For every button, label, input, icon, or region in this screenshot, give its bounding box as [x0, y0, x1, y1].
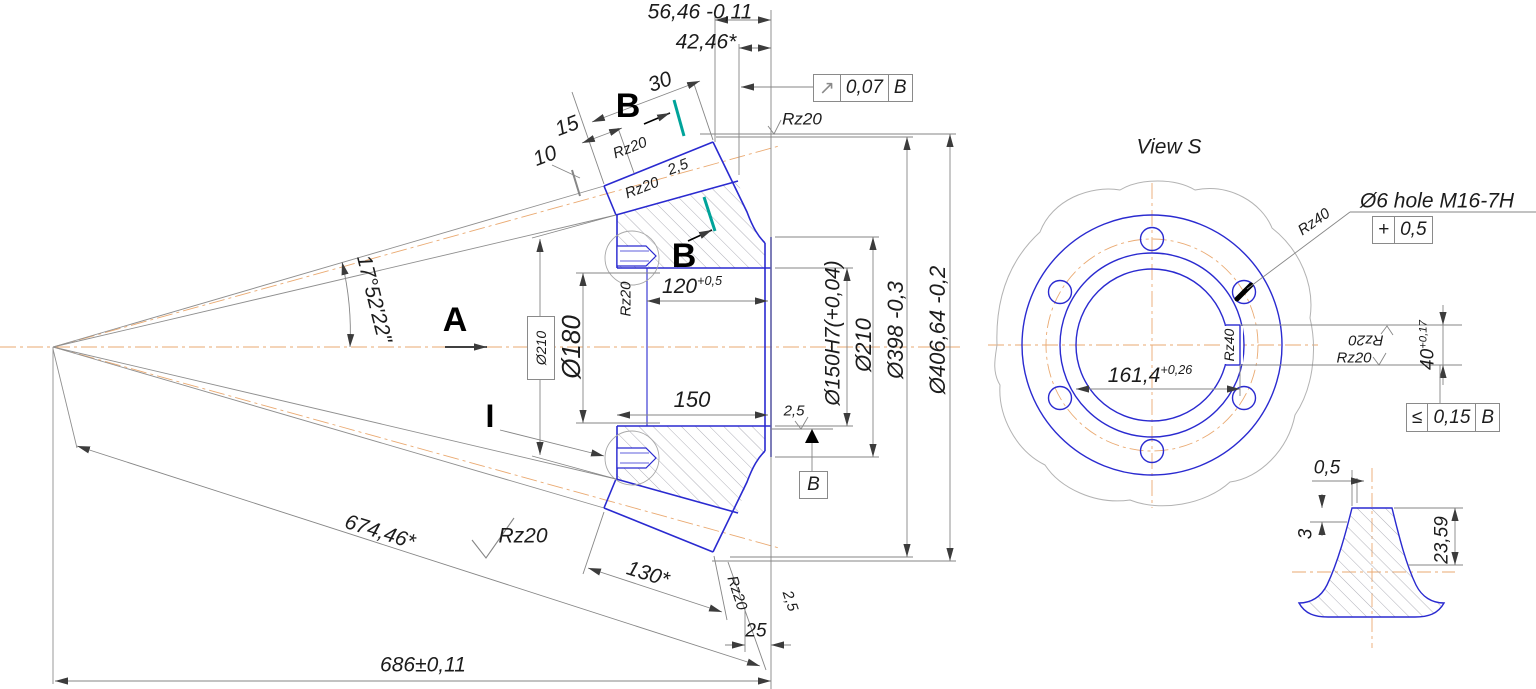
dim-theor-od: Ø406,64 -0,2 — [927, 266, 949, 394]
ref-dim-hub-od: Ø210 — [534, 331, 548, 365]
datum-b-box: B — [799, 471, 828, 499]
roughness-rz20-keyway-top: Rz20 — [1348, 333, 1383, 348]
view-s-geometry — [988, 181, 1536, 508]
dim-tip-flat: 0,5 — [1314, 459, 1340, 478]
roughness-rz20-bore: Rz20 — [619, 281, 634, 316]
blank-outline — [995, 181, 1314, 506]
dim-addendum: 3 — [1297, 529, 1316, 540]
dim-back-offset: 25 — [745, 622, 766, 641]
dim-back-width-ref: 42,46* — [676, 32, 737, 53]
section-label-b-lower: B — [672, 239, 697, 273]
hole-note: Ø6 hole M16-7H — [1360, 191, 1514, 212]
datum-b-triangle — [805, 429, 819, 443]
cone-generator-lines — [53, 186, 616, 684]
dim-back-width: 56,46 -0,11 — [648, 2, 753, 23]
drawing-linework — [0, 0, 1536, 689]
symmetry-value: 0,15 — [1427, 404, 1475, 431]
runout-symbol-icon: ↗ — [814, 75, 840, 101]
view-label-a: A — [443, 303, 468, 337]
dim-chamfer-back: 2,5 — [784, 404, 805, 419]
roughness-rz20-back: Rz20 — [782, 111, 822, 128]
dim-keyway-width: 40+0,17 — [1418, 320, 1437, 370]
roughness-rz40-keyway: Rz40 — [1222, 329, 1236, 362]
position-value: 0,5 — [1394, 217, 1431, 243]
position-tolerance-frame: + 0,5 — [1372, 216, 1433, 244]
dim-bore-dia: Ø150H7(+0,04) — [823, 260, 844, 405]
dim-bore-keyway: 161,4+0,26 — [1108, 364, 1192, 386]
runout-value: 0,07 — [840, 75, 888, 101]
symmetry-symbol-icon: ≤ — [1407, 404, 1427, 431]
symmetry-datum: B — [1475, 404, 1499, 431]
runout-tolerance-frame: ↗ 0,07 B — [813, 74, 913, 102]
symmetry-tolerance-frame: ≤ 0,15 B — [1406, 403, 1500, 432]
position-symbol-icon: + — [1373, 217, 1394, 243]
dim-overall: 686±0,11 — [380, 655, 466, 676]
engineering-drawing: 56,46 -0,11 42,46* 30 15 10 Rz20 2,5 Rz2… — [0, 0, 1536, 689]
dim-tip-od: Ø398 -0,3 — [885, 281, 907, 379]
section-label-b-top: B — [616, 89, 641, 123]
ref-dim-hub-od-box: Ø210 — [527, 316, 555, 380]
datum-b-label: B — [807, 474, 820, 496]
detail-label-i: I — [486, 400, 495, 432]
runout-datum: B — [888, 75, 912, 101]
view-s-title: View S — [1137, 137, 1202, 158]
dim-holes-pcd: Ø180 — [558, 315, 584, 379]
dim-hub-len: 150 — [674, 389, 711, 411]
roughness-rz20-face-cone: Rz20 — [498, 526, 547, 547]
dim-bore-len: 120+0,5 — [662, 275, 722, 297]
dim-rim-od: Ø210 — [853, 318, 875, 372]
roughness-rz20-keyway-bottom: Rz20 — [1336, 351, 1371, 366]
dim-tooth-height: 23,59 — [1433, 516, 1452, 564]
